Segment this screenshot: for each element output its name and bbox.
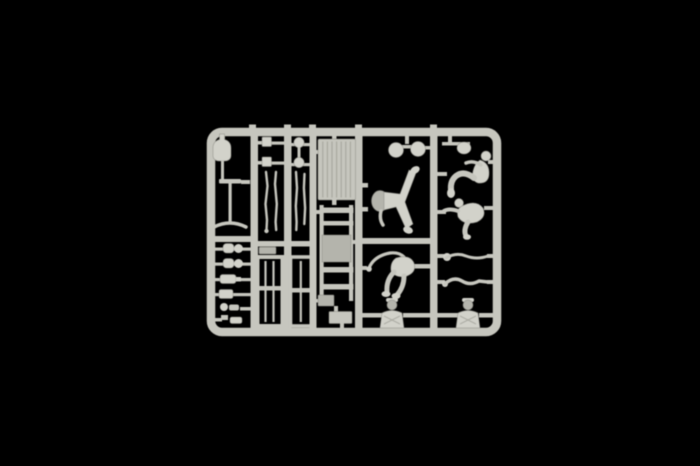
connector-stub	[479, 313, 495, 318]
part-small-plate	[259, 247, 276, 254]
connector-stub	[271, 142, 285, 145]
column-accessories	[213, 134, 251, 324]
part-small-blocks	[312, 295, 352, 329]
connector-stub	[334, 306, 338, 312]
part-jug-2	[223, 259, 243, 269]
jug-knob	[234, 244, 243, 253]
runner-5	[430, 134, 438, 330]
rod-tip	[264, 229, 268, 233]
figure-arm	[466, 162, 481, 165]
part-leg-rod	[296, 172, 297, 230]
sprue	[211, 125, 497, 333]
jug-body	[223, 259, 234, 269]
trestle-rung	[320, 284, 354, 290]
part-bust-center	[359, 298, 432, 328]
connector-stub	[214, 318, 222, 322]
part-helmet	[389, 143, 404, 158]
part-leg-rod	[304, 174, 305, 224]
fitting-block	[230, 317, 242, 324]
frame-outline	[258, 257, 283, 326]
frame-midbar	[289, 288, 313, 293]
column-3	[289, 137, 313, 326]
part-cup	[219, 290, 233, 299]
connector-stub	[298, 147, 301, 158]
connector-stub	[405, 134, 409, 144]
connector-stub	[312, 210, 320, 214]
column-figures-center	[359, 134, 432, 328]
bust-head	[387, 300, 397, 310]
part-leg-rod	[266, 172, 268, 230]
block	[329, 312, 352, 324]
connector-stub	[435, 313, 461, 318]
table-stem	[229, 183, 232, 223]
gate-nub	[309, 125, 316, 129]
figure-boot	[382, 291, 391, 297]
leg-shin	[446, 254, 488, 258]
runner-4	[355, 134, 363, 330]
gate-nub	[355, 125, 362, 129]
cross-runner	[257, 241, 312, 247]
sprue-photo	[0, 0, 700, 466]
figure-boot	[463, 234, 471, 240]
part-pedestal-table	[214, 179, 246, 227]
connector-stub	[359, 183, 368, 188]
connector-stub	[448, 134, 452, 143]
block	[318, 295, 334, 306]
bust-head	[463, 300, 473, 310]
part-slatted-frame	[289, 257, 313, 326]
column-figures-right	[435, 134, 495, 328]
connector-stub	[268, 324, 272, 330]
bust-torso	[456, 311, 480, 329]
connector-stub	[403, 313, 432, 318]
part-arm	[437, 279, 495, 287]
part-trestle-frame	[312, 205, 357, 301]
part-square-connector	[262, 157, 272, 167]
connector-stub	[241, 180, 250, 184]
cross-runner	[361, 238, 431, 244]
figure-leg	[397, 276, 404, 295]
table-top-edge	[219, 179, 241, 184]
part-flask	[220, 275, 241, 284]
flask-body	[220, 275, 236, 284]
frame-midbar	[256, 286, 284, 291]
part-jug-1	[223, 244, 243, 254]
gate-nub	[249, 125, 256, 129]
jug-body	[223, 244, 234, 254]
gate-nub	[284, 125, 291, 129]
connector-stub	[359, 266, 367, 270]
figure-body-legs	[384, 170, 416, 229]
figure-legs	[451, 173, 474, 190]
part-round-connector	[294, 137, 304, 147]
connector-stub	[332, 199, 337, 205]
connector-stub	[414, 264, 432, 269]
part-leg	[437, 253, 495, 261]
fitting-block	[221, 315, 228, 320]
part-table-top	[318, 139, 356, 200]
photo-background	[0, 0, 700, 466]
part-round-connector	[294, 157, 304, 167]
figure-leg	[465, 222, 468, 236]
part-square-connector	[262, 137, 272, 147]
figure-torso	[458, 203, 485, 223]
connector-stub	[359, 313, 383, 318]
connector-stub	[437, 172, 447, 176]
connector-stub	[488, 160, 495, 164]
arm-limb	[445, 279, 488, 284]
figure-arm	[380, 211, 383, 225]
connector-stub	[240, 307, 251, 311]
part-seated-figure-leaning	[437, 151, 495, 198]
trestle-rung	[320, 221, 354, 226]
column-table	[312, 134, 357, 329]
trestle-plank	[322, 235, 351, 262]
figure-leg	[387, 272, 394, 292]
part-crouching-figure	[359, 253, 432, 299]
part-helmet-pouch	[457, 142, 471, 154]
fitting-block	[229, 305, 239, 311]
connector-stub	[484, 206, 495, 210]
part-reclining-figure	[359, 164, 421, 235]
figure-hand	[366, 266, 372, 272]
connector-stub	[271, 162, 285, 165]
fitting-knob	[220, 303, 228, 311]
cross-runner	[214, 236, 251, 242]
connector-stub	[359, 207, 368, 212]
part-helmet	[411, 142, 426, 157]
figure-boot	[447, 188, 455, 198]
connector-stub	[221, 161, 224, 179]
part-small-fittings	[214, 303, 251, 324]
figure-head	[481, 151, 491, 161]
table-base	[214, 223, 246, 227]
part-bust-right	[435, 298, 495, 328]
connector-stub	[340, 323, 344, 329]
trestle-rung	[320, 267, 354, 273]
gate-nub	[430, 125, 437, 129]
figure-boot	[402, 225, 414, 235]
jug-knob	[234, 259, 243, 268]
part-seated-figure-bent	[437, 199, 495, 240]
column-2	[256, 137, 285, 330]
part-leg-rod	[275, 172, 277, 230]
trestle-rung	[320, 208, 354, 214]
bust-torso	[380, 311, 404, 329]
part-slatted-frame	[256, 257, 284, 330]
flask-neck	[236, 277, 241, 282]
figure-arm	[444, 210, 458, 212]
connector-stub	[353, 240, 357, 244]
